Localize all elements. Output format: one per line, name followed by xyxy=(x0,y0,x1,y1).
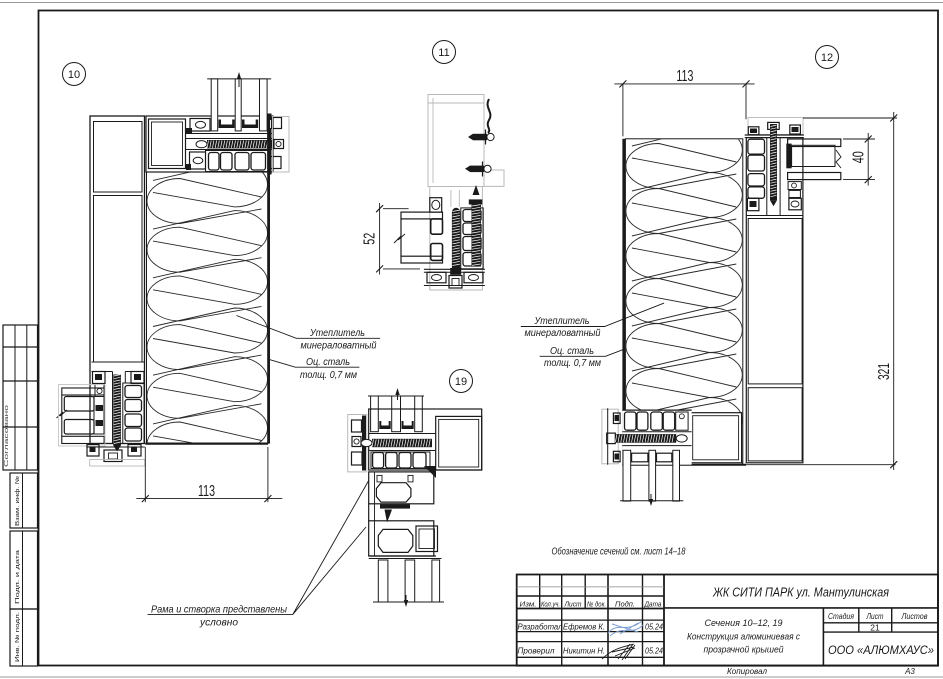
svg-text:Лист: Лист xyxy=(564,600,582,609)
svg-text:Утеплитель: Утеплитель xyxy=(309,328,365,339)
svg-text:113: 113 xyxy=(676,68,693,85)
svg-text:Подп. и дата: Подп. и дата xyxy=(15,549,21,604)
svg-text:05.24: 05.24 xyxy=(645,622,663,632)
svg-text:Изм.: Изм. xyxy=(520,600,537,609)
svg-text:Оц. сталь: Оц. сталь xyxy=(550,346,594,357)
svg-text:Разработал: Разработал xyxy=(518,622,563,632)
svg-text:Взам. инф. №: Взам. инф. № xyxy=(15,476,21,526)
svg-text:Копировал: Копировал xyxy=(727,667,767,676)
svg-text:Рама и створка представлены: Рама и створка представлены xyxy=(151,605,288,616)
svg-text:Лист: Лист xyxy=(866,611,884,621)
svg-text:ООО «АЛЮМХАУС»: ООО «АЛЮМХАУС» xyxy=(828,645,934,657)
svg-text:№ док.: № док. xyxy=(587,600,606,609)
svg-text:толщ. 0,7 мм: толщ. 0,7 мм xyxy=(544,358,601,369)
svg-text:Согласовано: Согласовано xyxy=(4,405,10,467)
svg-text:21: 21 xyxy=(870,622,880,632)
svg-text:прозрачной крышей: прозрачной крышей xyxy=(704,644,784,654)
svg-text:11: 11 xyxy=(438,47,449,59)
svg-text:толщ. 0,7 мм: толщ. 0,7 мм xyxy=(300,370,357,381)
svg-text:Никитин Н.: Никитин Н. xyxy=(563,645,605,655)
svg-text:05.24: 05.24 xyxy=(645,645,663,655)
svg-text:52: 52 xyxy=(362,233,379,245)
svg-text:Сечения 10–12, 19: Сечения 10–12, 19 xyxy=(705,618,783,628)
svg-text:Дата: Дата xyxy=(644,600,662,609)
svg-text:условно: условно xyxy=(199,618,238,629)
svg-text:321: 321 xyxy=(876,363,893,380)
svg-text:40: 40 xyxy=(851,151,868,163)
svg-text:Подп.: Подп. xyxy=(615,600,635,609)
svg-text:Стадия: Стадия xyxy=(828,611,854,621)
svg-text:ЖК СИТИ ПАРК ул. Мантулинская: ЖК СИТИ ПАРК ул. Мантулинская xyxy=(712,585,889,600)
svg-text:Ефремов К.: Ефремов К. xyxy=(563,622,605,632)
svg-text:Инв. № подл.: Инв. № подл. xyxy=(15,611,21,662)
svg-text:Кол.уч.: Кол.уч. xyxy=(541,600,560,609)
svg-text:10: 10 xyxy=(68,69,80,81)
svg-text:19: 19 xyxy=(455,376,467,388)
svg-text:Конструкция алюминиевая с: Конструкция алюминиевая с xyxy=(687,631,800,641)
svg-text:Проверил: Проверил xyxy=(518,645,555,655)
svg-text:минераловатный: минераловатный xyxy=(301,341,377,352)
svg-text:А3: А3 xyxy=(904,667,915,676)
svg-text:Утеплитель: Утеплитель xyxy=(534,316,590,327)
svg-text:113: 113 xyxy=(198,483,215,500)
svg-text:Оц. сталь: Оц. сталь xyxy=(306,357,350,368)
svg-text:12: 12 xyxy=(821,52,833,64)
svg-text:Обозначение сечений см. лист 1: Обозначение сечений см. лист 14–18 xyxy=(552,546,686,558)
svg-text:минераловатный: минераловатный xyxy=(525,328,601,339)
svg-text:Листов: Листов xyxy=(901,611,928,621)
